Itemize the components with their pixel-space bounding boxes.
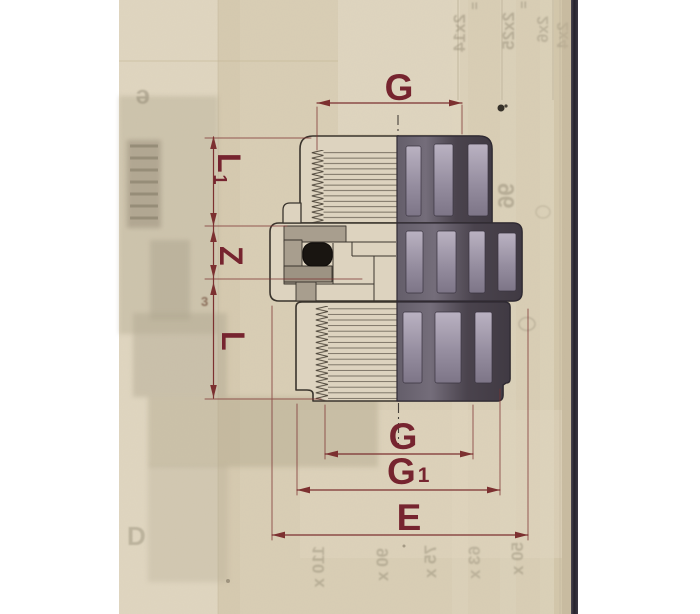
ghost-row-110: 110 x xyxy=(309,546,328,588)
grip-slot xyxy=(406,231,423,293)
ghost-row-75: 75 x xyxy=(421,545,440,579)
lower-body-section xyxy=(296,302,510,401)
ghost-row-50: 50 x xyxy=(508,542,527,576)
ghost-eq1: = xyxy=(467,2,482,10)
ghost-eq2: = xyxy=(516,1,531,9)
speck xyxy=(403,545,406,548)
top-thread-section xyxy=(300,136,492,224)
grip-slot xyxy=(437,231,456,293)
speck xyxy=(226,579,230,583)
cut-face xyxy=(296,282,316,301)
dim-label-z: Z xyxy=(213,246,249,266)
nut-shoulder-step xyxy=(283,203,301,223)
page-edge-shadow xyxy=(562,0,572,614)
ghost-mark-3: 3 xyxy=(201,294,208,309)
dim-label-l1-sub: 1 xyxy=(210,175,230,185)
o-ring-seal xyxy=(303,243,332,266)
internal-thread-bottom xyxy=(315,306,397,401)
dim-label-g1-main: G xyxy=(387,451,416,492)
ghost-num-96: 96 xyxy=(493,183,519,209)
page-edge xyxy=(571,0,578,614)
ghost-col-2x14: 2x14 xyxy=(450,14,469,52)
dim-label-g1-sub: 1 xyxy=(418,464,430,487)
dim-label-e: E xyxy=(397,497,422,538)
grip-slot xyxy=(403,312,422,383)
dim-label-g-top: G xyxy=(385,67,414,108)
ghost-row-63: 63 x xyxy=(465,546,484,580)
ghost-col-2x6: 2x6 xyxy=(535,16,552,43)
ink-blot xyxy=(498,105,505,112)
grip-slot xyxy=(498,233,516,291)
grip-slot xyxy=(435,312,461,383)
grip-slot xyxy=(468,144,488,216)
ghost-col-2x25: 2x25 xyxy=(499,12,518,50)
grip-slot xyxy=(475,312,492,383)
internal-thread-top xyxy=(311,150,397,224)
grip-slot xyxy=(406,146,421,216)
ghost-letter-d: D xyxy=(127,521,146,551)
grip-slot xyxy=(434,144,453,216)
ghost-table-lines xyxy=(130,146,158,218)
grip-slot xyxy=(469,231,485,293)
scanned-page: = 2x14 = 2x25 2x6 2x4 96 110 x 90 x 75 x… xyxy=(0,0,700,614)
ink-blot xyxy=(504,104,507,107)
catalog-scan: = 2x14 = 2x25 2x6 2x4 96 110 x 90 x 75 x… xyxy=(0,0,700,614)
ghost-letter-e: e xyxy=(136,84,150,114)
dim-label-l1-main: L xyxy=(211,153,247,173)
cut-face xyxy=(284,266,332,282)
fitting-drawing xyxy=(270,136,522,401)
dim-label-l: L xyxy=(215,331,251,351)
ghost-row-90: 90 x xyxy=(373,548,392,582)
